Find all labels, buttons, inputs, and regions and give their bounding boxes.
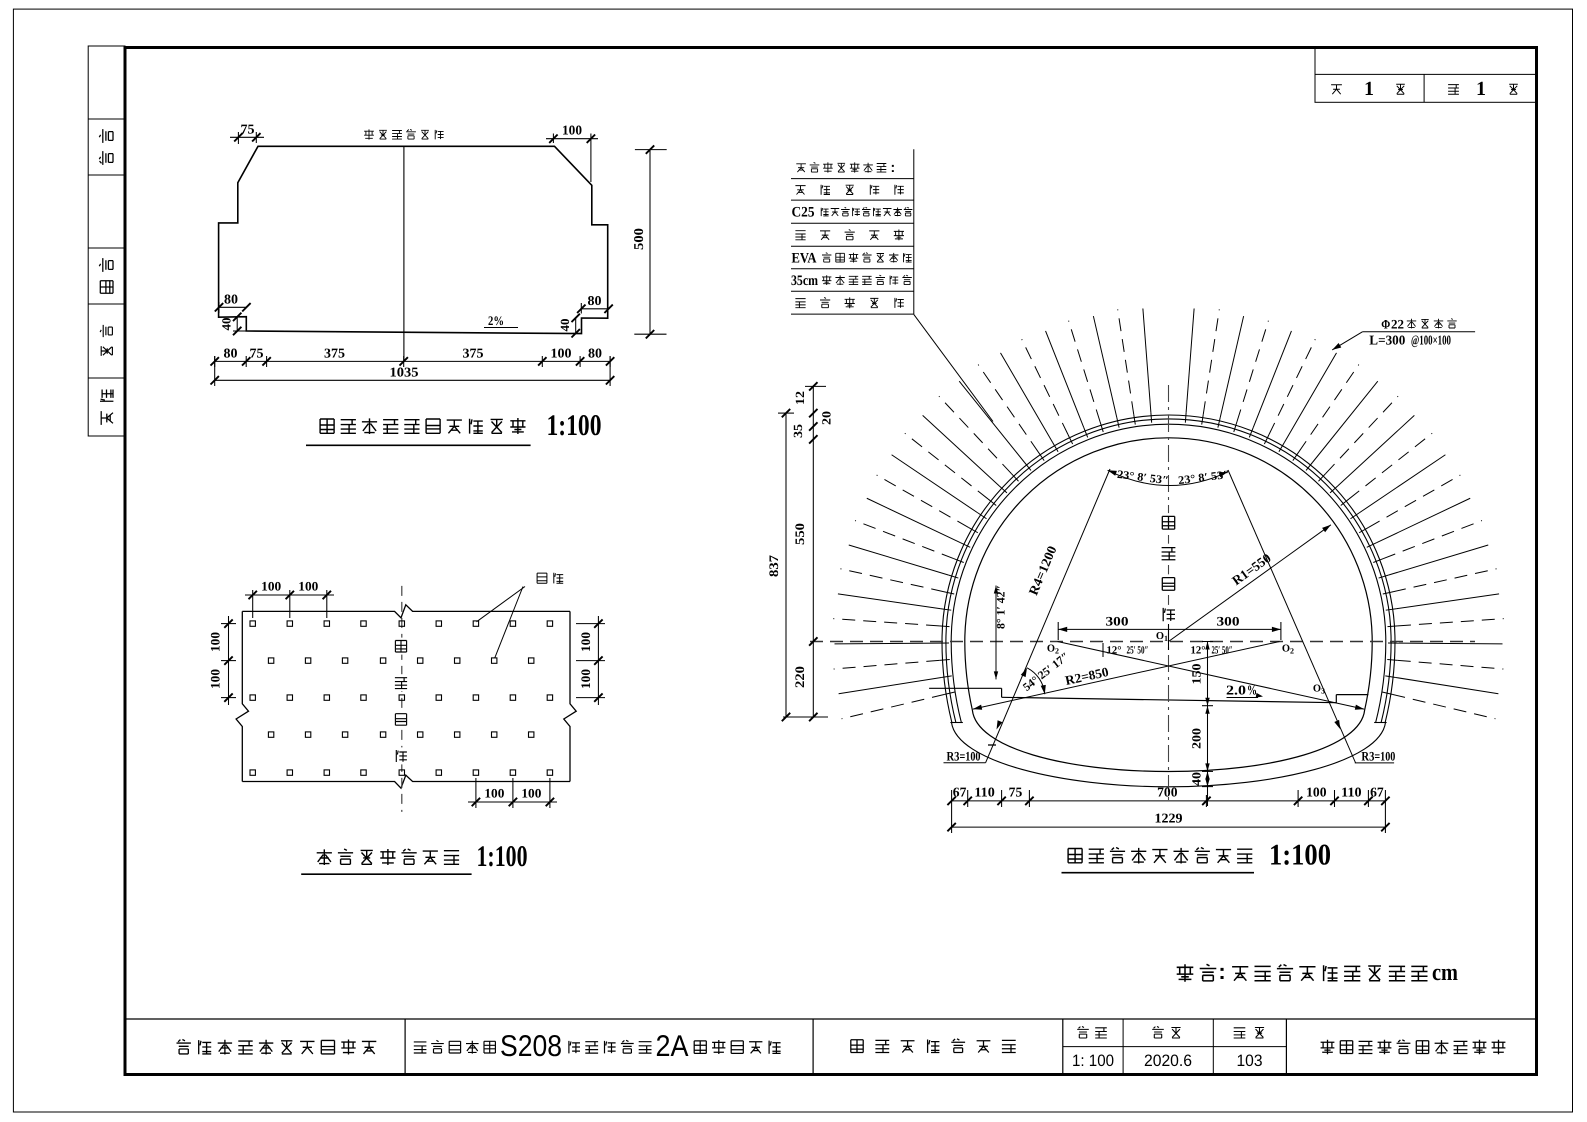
svg-text:375: 375 [463,346,484,361]
svg-text:=100: =100 [1374,749,1395,764]
svg-text:80: 80 [224,292,238,307]
svg-text:L=300: L=300 [1369,333,1405,348]
svg-text:100: 100 [298,579,318,594]
svg-text:100: 100 [208,669,223,689]
svg-text:220: 220 [792,666,807,688]
svg-text:67: 67 [1370,785,1384,800]
svg-text:22: 22 [1391,317,1404,332]
svg-text:O: O [1047,644,1055,655]
svg-text:100: 100 [562,123,582,138]
svg-text:@100×100: @100×100 [1411,333,1451,348]
svg-text:80: 80 [224,346,238,361]
svg-text:75: 75 [1009,785,1023,800]
svg-text:1: 1 [1476,78,1486,100]
svg-text:S208: S208 [500,1030,562,1063]
svg-text:837: 837 [766,554,781,577]
svg-text:550: 550 [792,523,807,545]
svg-text:R3: R3 [947,749,960,764]
svg-text:2A: 2A [656,1030,689,1063]
svg-text:EVA: EVA [792,251,817,267]
svg-text:%: % [1247,683,1257,698]
svg-text:12°: 12° [1107,645,1122,657]
svg-text:12°: 12° [1191,645,1206,657]
svg-text:1035: 1035 [390,365,419,380]
svg-text:O: O [1313,684,1321,695]
svg-text:75: 75 [250,346,264,361]
svg-text:1: 1 [1164,634,1168,643]
svg-text:100: 100 [578,632,593,652]
svg-text:100: 100 [521,786,541,801]
svg-text:1:100: 1:100 [547,409,602,442]
svg-text:35: 35 [791,424,805,438]
svg-text:1229: 1229 [1155,811,1183,826]
svg-text:2%: 2% [488,313,504,328]
svg-text:25′ 50″: 25′ 50″ [1127,645,1149,657]
svg-text:100: 100 [551,346,572,361]
svg-text:100: 100 [578,669,593,689]
svg-text:1:100: 1:100 [477,840,528,873]
svg-text:75: 75 [241,122,255,137]
svg-text:375: 375 [324,346,345,361]
svg-text:67: 67 [953,785,967,800]
svg-text:80: 80 [588,346,602,361]
svg-text:8° 1′ 42″: 8° 1′ 42″ [996,585,1008,629]
svg-text:R3: R3 [1361,749,1374,764]
svg-text:110: 110 [1341,785,1362,800]
svg-text:103: 103 [1237,1052,1263,1070]
svg-text:100: 100 [484,786,504,801]
svg-text:35cm: 35cm [791,273,818,289]
svg-text:300: 300 [1217,614,1240,629]
svg-text:O: O [1156,631,1164,642]
svg-text:R4=1200: R4=1200 [1025,543,1059,597]
svg-text:1:100: 1:100 [1269,839,1331,872]
svg-text:40: 40 [1190,772,1204,786]
svg-text:300: 300 [1106,614,1129,629]
svg-text:1: 100: 1: 100 [1072,1052,1114,1070]
svg-text:1: 1 [1364,78,1374,100]
svg-text:54° 25′ 17″: 54° 25′ 17″ [1021,651,1072,694]
svg-text::: : [891,159,896,175]
svg-text:40: 40 [220,318,234,331]
svg-text:2: 2 [1055,647,1059,656]
svg-text:12: 12 [793,391,807,405]
svg-text:3: 3 [1321,687,1325,696]
svg-text:=100: =100 [960,749,981,764]
svg-text:150: 150 [1190,664,1204,685]
svg-text:40: 40 [558,319,572,332]
svg-text:25′ 50″: 25′ 50″ [1212,645,1233,657]
svg-text:O: O [1282,644,1290,655]
svg-text:700: 700 [1157,785,1178,800]
svg-text:500: 500 [631,228,646,250]
svg-text:200: 200 [1190,728,1204,749]
svg-text:2020.6: 2020.6 [1144,1052,1192,1070]
svg-text:110: 110 [974,785,995,800]
svg-text:C25: C25 [792,205,815,221]
svg-text:2: 2 [1290,647,1294,656]
svg-text:23° 8′ 53″: 23° 8′ 53″ [1178,469,1231,487]
svg-text:cm: cm [1432,960,1458,986]
svg-text:100: 100 [261,579,281,594]
svg-text:80: 80 [588,293,602,308]
svg-text:100: 100 [208,632,223,652]
svg-text:20: 20 [820,411,834,425]
svg-text:23° 8′ 53″: 23° 8′ 53″ [1116,469,1169,487]
svg-text:Φ: Φ [1381,317,1390,332]
svg-text::: : [1218,959,1225,984]
svg-text:100: 100 [1306,785,1327,800]
svg-text:2.0: 2.0 [1226,683,1246,698]
